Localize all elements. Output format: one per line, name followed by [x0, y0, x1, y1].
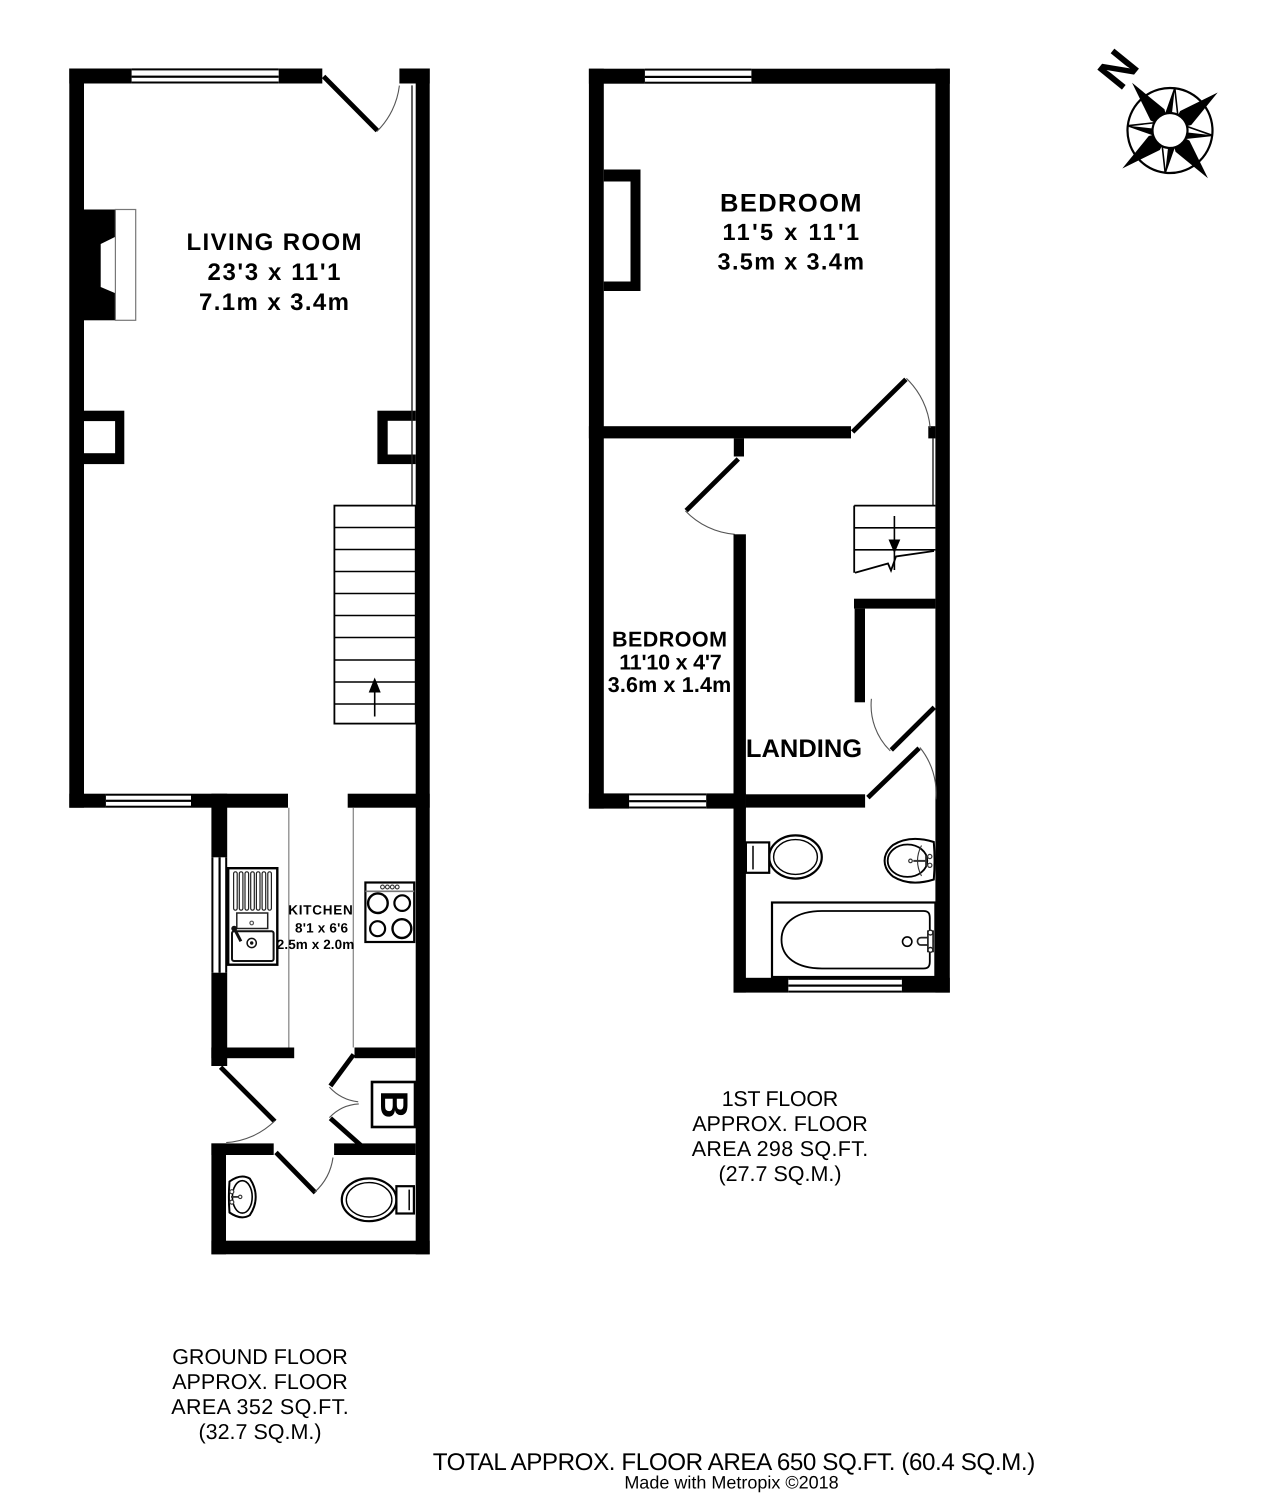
svg-text:AREA 352 SQ.FT.: AREA 352 SQ.FT.: [171, 1395, 349, 1419]
svg-text:11'10 x 4'7: 11'10 x 4'7: [619, 650, 722, 674]
svg-text:3.6m x 1.4m: 3.6m x 1.4m: [608, 673, 732, 697]
svg-text:11'5 x 11'1: 11'5 x 11'1: [723, 219, 860, 245]
svg-text:BEDROOM: BEDROOM: [720, 190, 862, 218]
svg-text:GROUND FLOOR: GROUND FLOOR: [172, 1345, 348, 1369]
svg-text:APPROX. FLOOR: APPROX. FLOOR: [692, 1112, 868, 1136]
svg-text:LANDING: LANDING: [746, 735, 862, 763]
svg-text:2.5m x 2.0m: 2.5m x 2.0m: [277, 937, 355, 952]
svg-text:LIVING ROOM: LIVING ROOM: [187, 229, 362, 256]
svg-text:(32.7 SQ.M.): (32.7 SQ.M.): [198, 1420, 321, 1444]
svg-text:23'3 x 11'1: 23'3 x 11'1: [208, 259, 341, 286]
svg-text:APPROX. FLOOR: APPROX. FLOOR: [172, 1370, 348, 1394]
svg-text:AREA 298 SQ.FT.: AREA 298 SQ.FT.: [692, 1137, 869, 1161]
svg-text:KITCHEN: KITCHEN: [288, 902, 353, 917]
svg-text:8'1 x 6'6: 8'1 x 6'6: [295, 920, 348, 935]
svg-text:B: B: [372, 1091, 415, 1119]
svg-text:1ST FLOOR: 1ST FLOOR: [722, 1087, 839, 1111]
svg-text:(27.7 SQ.M.): (27.7 SQ.M.): [718, 1162, 841, 1186]
svg-text:BEDROOM: BEDROOM: [612, 628, 727, 652]
svg-text:Made with Metropix ©2018: Made with Metropix ©2018: [624, 1473, 838, 1493]
